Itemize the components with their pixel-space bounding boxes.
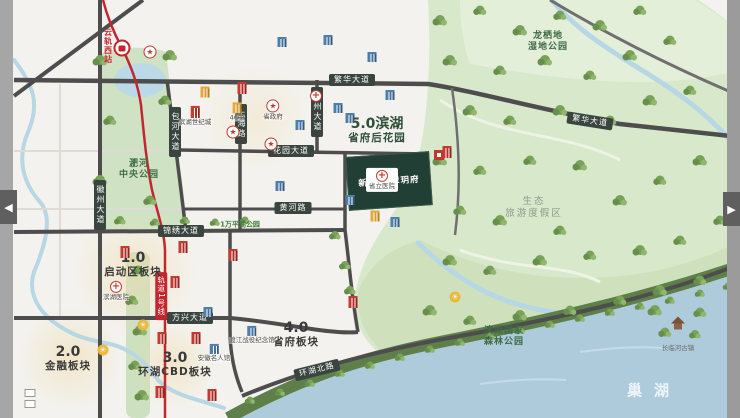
cross-icon: + — [310, 90, 322, 102]
bldg-marker: 滨湖世纪城 — [179, 106, 212, 126]
sun-icon: ☀ — [450, 292, 461, 303]
bldg-marker — [208, 389, 217, 401]
area-label: 生态 旅游度假区 — [505, 196, 563, 220]
blue-icon — [248, 326, 257, 336]
blue-marker: 安徽名人馆 — [198, 344, 231, 362]
school-marker: 46中 — [230, 102, 245, 121]
star-icon: ★ — [227, 126, 240, 139]
star-marker: ★ — [227, 126, 240, 139]
zone-name: 省府后花园 — [348, 132, 406, 144]
bldg-icon — [171, 276, 180, 288]
map-overlay: 新华·翡翠玥府 云轨西站 轨道1号线 巢湖 1.0启动区板块2.0金融板块3.0… — [13, 0, 727, 418]
sun-marker: ☀ — [138, 320, 149, 331]
bldg-marker — [349, 296, 358, 308]
road-badge: 繁华大道 — [329, 74, 375, 86]
road-badge: 环湖北路 — [293, 359, 341, 382]
poi-label: 滨湖世纪城 — [179, 119, 212, 126]
bldg-icon — [349, 296, 358, 308]
poi-label: 省政府 — [263, 113, 283, 120]
star-icon: ★ — [144, 46, 157, 59]
blue-icon — [296, 120, 305, 130]
blue-marker — [296, 120, 305, 130]
bldg-icon — [179, 241, 188, 253]
bldg-marker — [238, 82, 247, 94]
school-icon — [371, 211, 380, 222]
area-label: 龙栖地 湿地公园 — [528, 31, 568, 54]
blue-icon — [368, 52, 377, 62]
school-icon — [233, 102, 242, 113]
bldg-icon — [229, 249, 238, 261]
box-marker — [25, 400, 36, 408]
carousel-prev-button[interactable]: ◀ — [0, 190, 17, 224]
area-label: 1万平湖公园 — [220, 221, 260, 230]
road-badge-vertical: 徽州大道 — [94, 180, 106, 230]
cross-marker: +滨湖医院 — [103, 281, 129, 301]
bldg-marker — [171, 276, 180, 288]
poi-label: 46中 — [230, 114, 245, 121]
blue-marker — [386, 90, 395, 100]
cross-icon: + — [376, 170, 388, 182]
blue-icon — [324, 35, 333, 45]
bldg-marker — [121, 246, 130, 258]
star-marker: ★ — [144, 46, 157, 59]
poi-label: 滨湖医院 — [103, 294, 129, 301]
blue-icon — [210, 344, 219, 354]
bldg-marker — [443, 146, 452, 158]
sun-icon: ☀ — [98, 345, 109, 356]
star-icon: ★ — [265, 138, 278, 151]
cross-marker: +省立医院 — [366, 168, 398, 192]
poi-label: 省立医院 — [369, 183, 395, 190]
area-label: 长临河古镇 — [662, 344, 695, 352]
blue-marker: 渡江战役纪念馆 — [229, 326, 275, 344]
bldg-icon — [156, 386, 165, 398]
zone-number: 2.0 — [45, 344, 91, 360]
metro-station-icon — [114, 40, 131, 57]
bldg-icon — [238, 82, 247, 94]
school-marker — [371, 211, 380, 222]
sun-marker: ☀ — [98, 345, 109, 356]
school-marker — [201, 87, 210, 98]
poi-label: 渡江战役纪念馆 — [229, 337, 275, 344]
blue-marker — [278, 37, 287, 47]
bldg-marker — [156, 386, 165, 398]
road-badge: 黄河路 — [275, 202, 312, 214]
area-label: 滨湖国家 森林公园 — [484, 326, 524, 349]
bldg-marker — [192, 332, 201, 344]
pagoda-icon — [671, 317, 685, 324]
bldg-icon — [121, 246, 130, 258]
map-image[interactable]: 新华·翡翠玥府 云轨西站 轨道1号线 巢湖 1.0启动区板块2.0金融板块3.0… — [13, 0, 727, 418]
blue-icon — [346, 195, 355, 205]
blue-icon — [276, 181, 285, 191]
blue-icon — [334, 103, 343, 113]
sun-marker: ☀ — [450, 292, 461, 303]
blue-icon — [391, 217, 400, 227]
zone-name: 省府板块 — [273, 336, 319, 348]
zone-label: 5.0滨湖省府后花园 — [348, 116, 406, 144]
zone-label: 4.0省府板块 — [273, 320, 319, 348]
screenshot-root: 新华·翡翠玥府 云轨西站 轨道1号线 巢湖 1.0启动区板块2.0金融板块3.0… — [0, 0, 740, 418]
blue-marker — [391, 217, 400, 227]
zone-number: 5.0滨湖 — [348, 116, 406, 132]
star-icon: ★ — [267, 99, 280, 112]
area-label: 淝河 中央公园 — [119, 159, 159, 182]
bldg-icon — [192, 332, 201, 344]
lake-name-label: 巢湖 — [615, 380, 681, 401]
box-icon — [25, 389, 36, 397]
bldg-marker — [158, 332, 167, 344]
bldg-icon — [191, 106, 200, 118]
cross-icon: + — [110, 281, 122, 293]
blue-marker — [346, 113, 355, 123]
blue-icon — [386, 90, 395, 100]
blue-marker — [346, 195, 355, 205]
zone-name: 金融板块 — [45, 360, 91, 372]
blue-marker — [334, 103, 343, 113]
bldg-icon — [208, 389, 217, 401]
blue-marker — [368, 52, 377, 62]
bldg-marker — [229, 249, 238, 261]
pagoda-marker — [671, 317, 685, 324]
road-badge: 繁华大道 — [566, 111, 613, 130]
zone-label: 2.0金融板块 — [45, 344, 91, 372]
zone-number: 1.0 — [104, 250, 162, 266]
star-marker: ★省政府 — [263, 99, 283, 120]
school-icon — [201, 87, 210, 98]
road-badge: 锦绣大道 — [158, 225, 204, 237]
sun-icon: ☀ — [138, 320, 149, 331]
bldg-icon — [443, 146, 452, 158]
box-marker — [25, 389, 36, 397]
zone-number: 4.0 — [273, 320, 319, 336]
zone-label: 1.0启动区板块 — [104, 250, 162, 278]
poi-label: 安徽名人馆 — [198, 355, 231, 362]
bldg-marker — [179, 241, 188, 253]
carousel-next-button[interactable]: ▶ — [723, 192, 740, 226]
metro-station-label: 云轨西站 — [103, 28, 114, 64]
star-marker: ★ — [265, 138, 278, 151]
zone-name: 启动区板块 — [104, 266, 162, 278]
blue-icon — [278, 37, 287, 47]
cross-marker: + — [310, 90, 322, 102]
bldg-icon — [158, 332, 167, 344]
zone-name: 环湖CBD板块 — [138, 366, 211, 378]
blue-icon — [346, 113, 355, 123]
blue-marker — [276, 181, 285, 191]
metro-line-badge: 轨道1号线 — [155, 272, 167, 320]
blue-icon — [204, 307, 213, 317]
box-icon — [25, 400, 36, 408]
blue-marker — [204, 307, 213, 317]
blue-marker — [324, 35, 333, 45]
